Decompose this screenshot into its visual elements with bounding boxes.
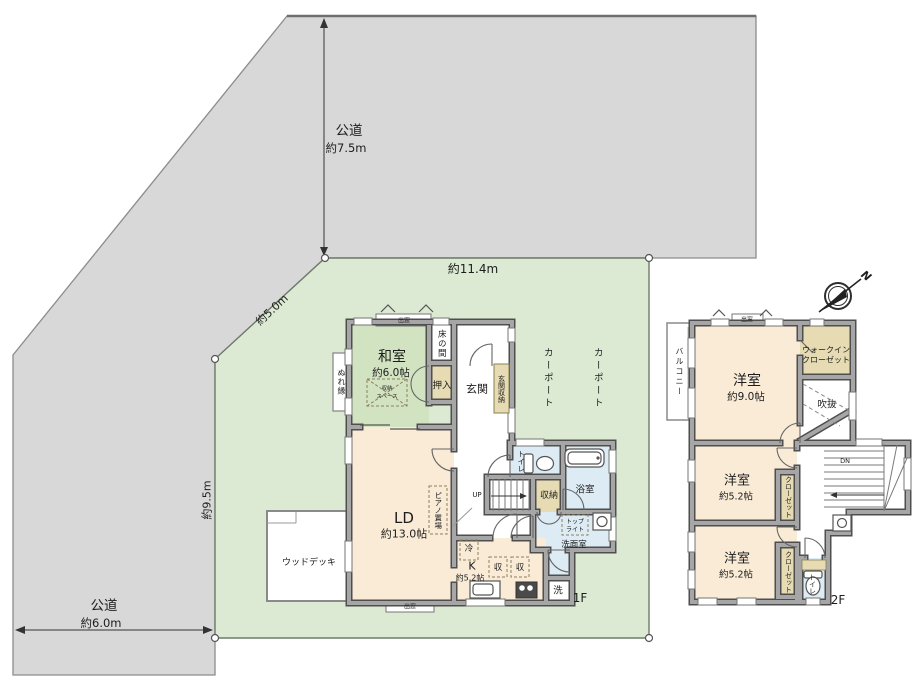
floor2-label: 2F (831, 593, 846, 607)
bathtub-icon (565, 449, 604, 467)
kitchen-label: K (468, 560, 476, 573)
bedroom2-size: 約5.2帖 (719, 491, 754, 503)
road-top-width: 約7.5m (326, 141, 367, 155)
bay-bottom-label: 出窓 (404, 603, 416, 611)
toilet-2f-label: トイレ (809, 574, 816, 595)
tokonoma-label: 床の間 (437, 330, 446, 359)
fridge-label: 冷 (465, 543, 474, 554)
bedroom2-label: 洋室 (724, 473, 750, 489)
compass-icon (819, 279, 861, 312)
oshiire-label: 押入 (432, 380, 452, 392)
dim-top-label: 約11.4m (448, 261, 498, 276)
site-plan-svg: 公道 約7.5m 約11.4m 約5.0m 約9.5m 公道 約6.0m N 和… (0, 0, 920, 691)
wood-deck-label: ウッドデッキ (282, 556, 336, 568)
road-left-width: 約6.0m (81, 616, 122, 630)
sto2-label: 収 (516, 562, 525, 573)
floor1-label: 1F (573, 591, 588, 605)
meter-box-2f (833, 515, 851, 531)
genkan-label: 玄関 (466, 382, 488, 396)
bedroom3-size: 約5.2帖 (719, 569, 754, 581)
compass-north-label: N (858, 268, 873, 284)
storage-space-line2: スペース (376, 393, 397, 400)
void-label: 吹抜 (817, 399, 837, 411)
washitsu-label: 和室 (378, 348, 406, 365)
bedroom1-label: 洋室 (733, 372, 761, 389)
road-top-label: 公道 (336, 123, 363, 139)
toilet-1f-label: トイレ (517, 450, 525, 473)
balcony-label: バルコニー (675, 347, 683, 397)
wic-line2: クローゼット (802, 355, 850, 365)
washitsu-size: 約6.0帖 (372, 366, 410, 379)
storage-label: 収納 (540, 489, 558, 501)
toplight-line1: トップ (566, 519, 584, 526)
bath-label: 浴室 (575, 484, 594, 496)
carport2-label: カーポート (592, 348, 602, 411)
kitchen-sink-icon (470, 581, 500, 598)
closet2-label: クローゼット (785, 551, 792, 593)
road-left-label: 公道 (91, 598, 118, 614)
sto1-label: 収 (494, 562, 503, 573)
bay-2f-label: 出窓 (741, 316, 753, 324)
bedroom1-size: 約9.0帖 (727, 390, 765, 403)
storage-space-line1: 収納 (381, 384, 393, 392)
piano-label: ピアノ置場 (434, 491, 442, 529)
washing-machine-icon (593, 513, 611, 530)
wic-line1: ウォークイン (802, 346, 850, 355)
wood-deck (267, 511, 350, 601)
genkan-storage-label: 玄関収納 (498, 375, 505, 403)
dim-left-label: 約9.5m (200, 480, 214, 519)
up-label: UP (472, 491, 481, 499)
kitchen-size: 約5.2帖 (456, 573, 485, 583)
carport1-label: カーポート (542, 348, 552, 411)
stove-icon (516, 582, 537, 598)
laundry-label: 洗 (553, 585, 563, 597)
ld-label: LD (394, 509, 414, 527)
nureen-label: ぬれ縁 (337, 369, 345, 396)
dn-label: DN (840, 457, 850, 465)
bedroom3-label: 洋室 (724, 551, 750, 567)
washroom-label: 洗面室 (561, 539, 587, 550)
toplight-line2: ライト (566, 527, 584, 534)
closet1-label: クローゼット (785, 476, 792, 518)
bay-top-label: 出窓 (398, 317, 410, 325)
ld-size: 約13.0帖 (381, 527, 428, 541)
floor-plan-page: 公道 約7.5m 約11.4m 約5.0m 約9.5m 公道 約6.0m N 和… (0, 0, 920, 691)
